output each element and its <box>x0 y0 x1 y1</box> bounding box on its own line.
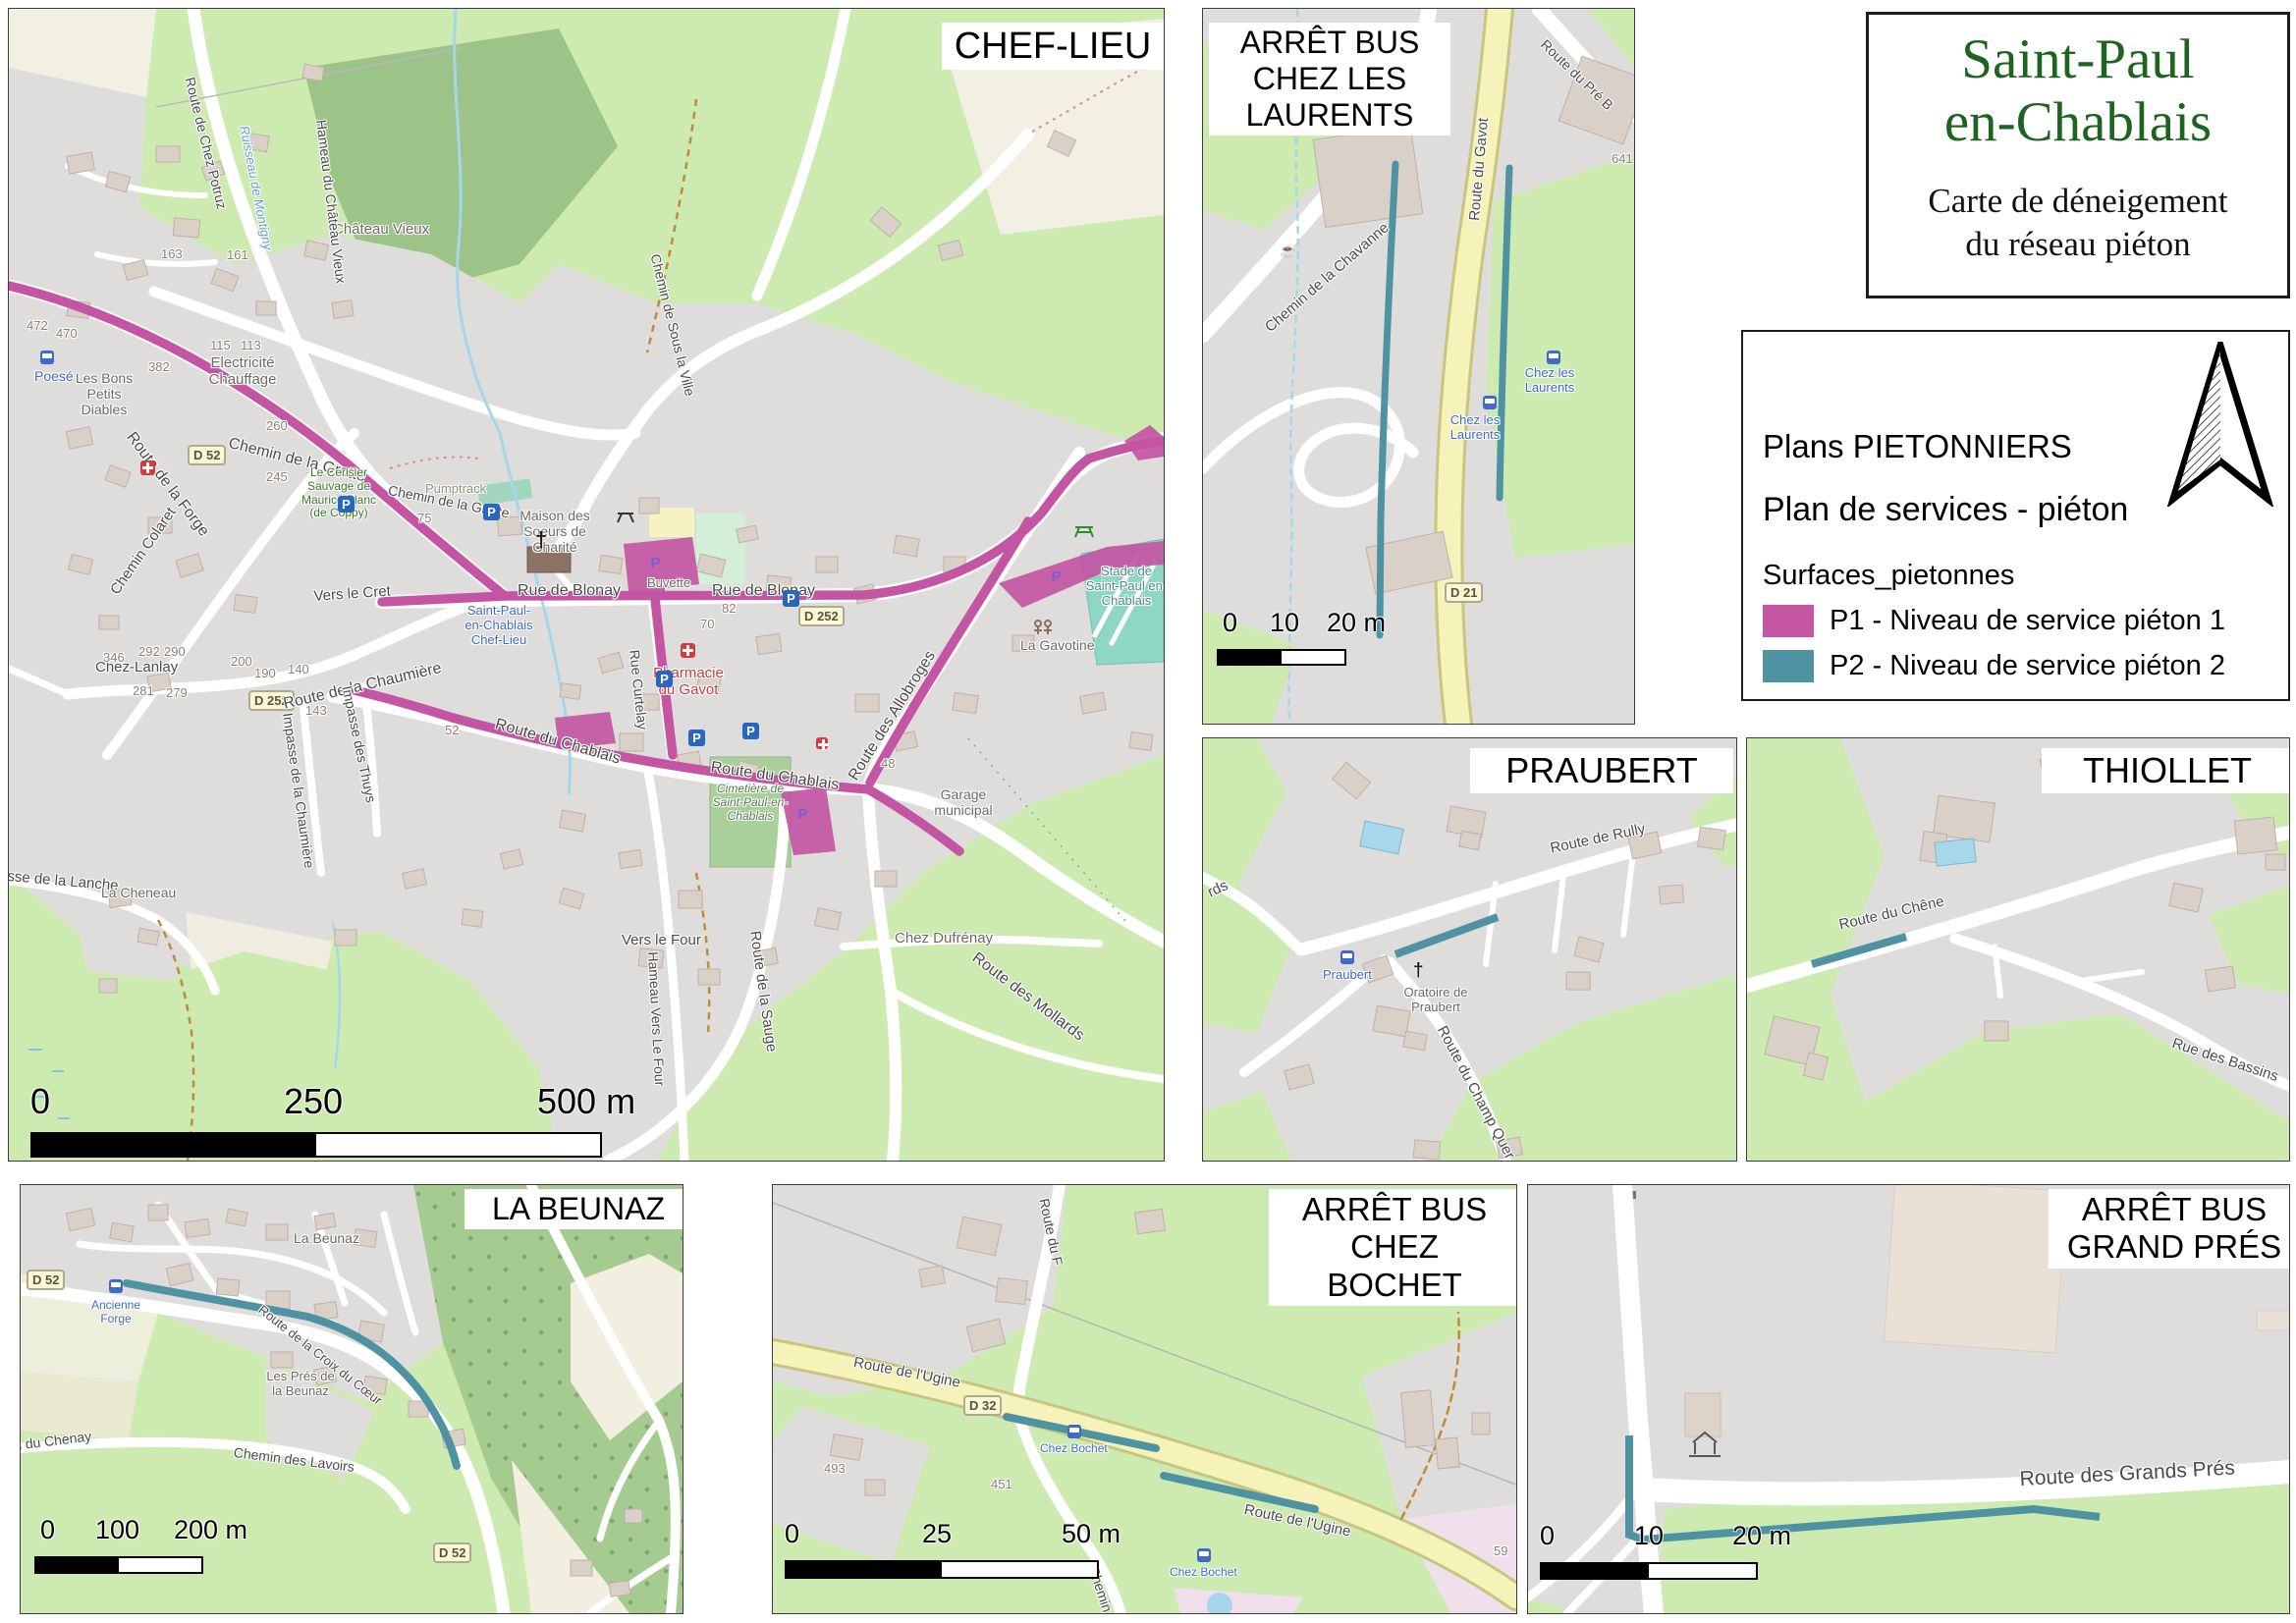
road-ref-badge: D 52 <box>433 1542 471 1563</box>
stadium-label: Stade de Saint-Paul en-Chablais <box>1083 565 1165 609</box>
bus-icon <box>1067 1425 1081 1438</box>
emergency-icon <box>816 737 828 749</box>
house-number: 346 <box>103 651 125 666</box>
bus-stop-label: Ancienne Forge <box>82 1299 150 1326</box>
scalebar-tick: 250 <box>284 1081 343 1122</box>
house-number: 470 <box>56 327 78 342</box>
bus-icon <box>1547 351 1560 364</box>
panel-arret-bus-chez-les-laurents: Route du Gavot Route du Pré B Chemin de … <box>1202 8 1635 725</box>
panel-arret-bus-grand-pres: Route des Grands Prés ARRÊT BUS GRAND PR… <box>1527 1184 2290 1614</box>
house-number: 82 <box>722 602 736 617</box>
panel-title: THIOLLET <box>2042 748 2290 793</box>
panel-thiollet: Route du Chêne Rue des Bassins THIOLLET <box>1746 737 2290 1162</box>
road-ref-badge: D 21 <box>1445 582 1483 603</box>
scalebar: 0 100 200 m <box>34 1515 250 1574</box>
panel-title: ARRÊT BUS GRAND PRÉS <box>2049 1189 2290 1269</box>
parking-icon: P <box>338 496 355 513</box>
p1-swatch <box>1763 605 1814 637</box>
house-number: 290 <box>164 645 186 660</box>
house-number: 281 <box>133 684 154 699</box>
place-label: Château Vieux <box>333 221 429 238</box>
panel-praubert: Route de Rully Route du Champ Quer rds P… <box>1202 737 1737 1162</box>
title-block: Saint-Paul en-Chablais Carte de déneigem… <box>1866 12 2290 298</box>
house-number: 493 <box>824 1462 846 1477</box>
house-number: 59 <box>1494 1544 1507 1559</box>
scalebar: 0 25 50 m <box>785 1519 1119 1579</box>
house-number: 190 <box>254 667 276 681</box>
place-label: Les Prés de la Beunaz <box>264 1370 337 1399</box>
thiollet-map <box>1747 738 2289 1161</box>
house-number: 161 <box>227 248 248 263</box>
house-number: 163 <box>161 247 183 262</box>
bus-icon <box>1483 396 1497 409</box>
cemetery-label: Cimetière de Saint-Paul-en-Chablais <box>708 783 793 823</box>
scalebar-tick: 500 m <box>537 1081 635 1122</box>
legend-subheading: Plan de services - piéton <box>1763 491 2128 529</box>
house-number: 260 <box>266 419 288 434</box>
house-number: 75 <box>417 512 431 526</box>
bus-icon <box>40 351 54 364</box>
bus-stop-label: Saint-Paul-en-Chablais Chef-Lieu <box>459 604 539 648</box>
bus-stop-label: Chez les Laurents <box>1517 366 1582 396</box>
road-ref-badge: D 252 <box>798 606 845 626</box>
house-number: 115 <box>210 339 231 353</box>
parking-icon: P <box>656 671 673 687</box>
north-arrow-icon <box>2166 342 2274 507</box>
poi-label: Garage municipal <box>926 786 1001 818</box>
oratory-cross-icon: † <box>1413 960 1424 982</box>
place-label: Les Bons Petits Diables <box>68 370 140 417</box>
bus-icon <box>109 1279 123 1293</box>
panel-chef-lieu: Poesé Les Bons Petits Diables Route de l… <box>8 8 1165 1162</box>
scalebar-tick: 0 <box>1540 1521 1555 1551</box>
street-label: Vers le Four <box>622 932 701 948</box>
scalebar-tick: 0 <box>30 1081 50 1122</box>
poi-label: Oratoire de Praubert <box>1392 986 1480 1015</box>
legend-layer-name: Surfaces_pietonnes <box>1763 560 2014 592</box>
bus-icon <box>1340 950 1354 964</box>
bus-stop-label: Chez Bochet <box>1170 1566 1237 1580</box>
p2-swatch <box>1763 650 1814 682</box>
house-number: 641 <box>1612 152 1633 167</box>
scalebar-tick: 20 m <box>1327 608 1386 638</box>
map-title: Saint-Paul en-Chablais <box>1869 28 2287 154</box>
house-number: 472 <box>27 319 48 334</box>
house-number: 70 <box>700 618 714 632</box>
scalebar-tick: 25 <box>922 1519 952 1549</box>
poi-label: Le Cerisier Sauvage de Maurice Blanc (de… <box>300 466 378 520</box>
poi-label: Electricité Chauffage <box>195 354 290 389</box>
house-number: 292 <box>138 645 160 660</box>
panel-arret-bus-chez-bochet: Route de l'Ugine Route de l'Ugine D 32 C… <box>772 1184 1517 1614</box>
road-ref-badge: D 52 <box>188 445 226 465</box>
legend-item-p2: P2 - Niveau de service piéton 2 <box>1763 650 2225 682</box>
legend-item-label: P1 - Niveau de service piéton 1 <box>1830 605 2225 637</box>
house-number: 279 <box>166 686 188 701</box>
scalebar-tick: 0 <box>40 1515 55 1545</box>
house-number: 113 <box>241 339 261 353</box>
place-label: La Gavotine <box>1020 637 1095 653</box>
road-ref-badge: D 52 <box>27 1270 65 1290</box>
panel-title: CHEF-LIEU <box>942 23 1164 70</box>
house-number: 245 <box>266 470 288 485</box>
parking-icon: P <box>688 730 705 746</box>
bus-stop-label: Chez les Laurents <box>1443 413 1507 443</box>
panel-title: LA BEUNAZ <box>465 1189 683 1229</box>
legend-heading: Plans PIETONNIERS <box>1763 428 2072 465</box>
house-number: 143 <box>305 704 327 719</box>
park-label: Pumptrack <box>425 482 486 497</box>
road-ref-badge: D 32 <box>963 1395 1002 1416</box>
church-cross-icon: † <box>535 527 547 553</box>
panel-title: PRAUBERT <box>1470 748 1733 793</box>
legend-item-label: P2 - Niveau de service piéton 2 <box>1830 650 2225 682</box>
bus-stop-label: Praubert <box>1323 968 1372 983</box>
cafe-icon: ☕ <box>1280 243 1296 259</box>
scalebar-tick: 50 m <box>1062 1519 1121 1549</box>
house-number: 48 <box>881 757 895 772</box>
scalebar-tick: 10 <box>1634 1521 1664 1551</box>
parking-icon: P <box>742 723 759 739</box>
scalebar-tick: 200 m <box>174 1515 247 1545</box>
scalebar-tick: 10 <box>1270 608 1299 638</box>
poi-label: Buvette <box>647 576 690 591</box>
scalebar: 0 250 500 m <box>30 1081 620 1158</box>
place-label: La Beunaz <box>294 1230 359 1246</box>
scalebar-tick: 20 m <box>1732 1521 1791 1551</box>
panel-title: ARRÊT BUS CHEZ BOCHET <box>1269 1189 1517 1306</box>
house-number: 200 <box>231 655 252 670</box>
pharmacy-icon <box>681 643 695 658</box>
scalebar-tick: 100 <box>95 1515 139 1545</box>
bus-stop-label: Chez Bochet <box>1040 1442 1108 1456</box>
panel-title: ARRÊT BUS CHEZ LES LAURENTS <box>1209 23 1450 135</box>
house-number: 451 <box>991 1478 1012 1492</box>
bus-icon <box>1197 1548 1211 1562</box>
panel-la-beunaz: La Beunaz Route de la Croix du Cœur Chem… <box>20 1184 683 1614</box>
house-number: 52 <box>445 724 459 738</box>
legend-box: Plans PIETONNIERS Plan de services - pié… <box>1741 330 2290 701</box>
scalebar-tick: 0 <box>1223 608 1237 638</box>
parking-icon: P <box>783 590 799 607</box>
house-number: 140 <box>288 663 309 677</box>
legend-item-p1: P1 - Niveau de service piéton 1 <box>1763 605 2225 637</box>
place-label: La Cheneau <box>101 885 176 900</box>
parking-icon: P <box>647 555 664 571</box>
house-number: 382 <box>148 360 170 375</box>
parking-icon: P <box>794 806 811 823</box>
scalebar: 0 10 20 m <box>1217 608 1384 666</box>
parking-icon: P <box>1048 568 1065 585</box>
street-label: Rue de Blonay <box>712 582 815 600</box>
map-subtitle: Carte de déneigement du réseau piéton <box>1869 180 2287 266</box>
scalebar: 0 10 20 m <box>1540 1521 1795 1580</box>
scalebar-tick: 0 <box>785 1519 799 1549</box>
place-label: Chez Dufrénay <box>895 930 993 947</box>
poi-label: Maison des Soeurs de Charité <box>510 508 600 555</box>
emergency-icon <box>140 460 155 475</box>
street-label: Rue de Blonay <box>518 582 621 600</box>
parking-icon: P <box>483 504 500 520</box>
snow-clearing-map-layout: Poesé Les Bons Petits Diables Route de l… <box>0 0 2296 1623</box>
